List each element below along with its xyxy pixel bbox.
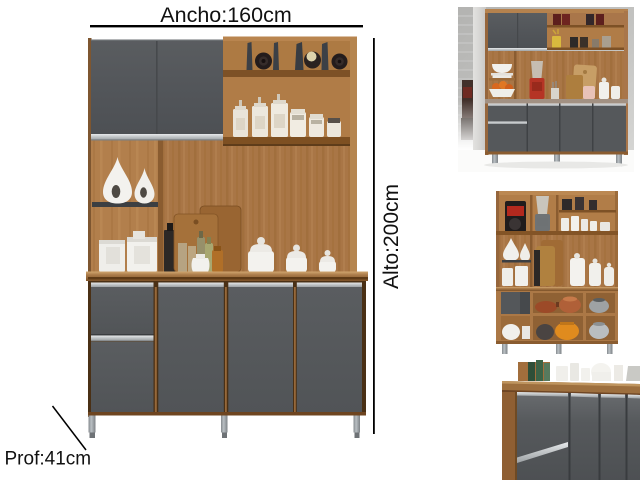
svg-text:Alto:200cm: Alto:200cm bbox=[380, 184, 403, 289]
svg-text:Ancho:160cm: Ancho:160cm bbox=[160, 3, 291, 27]
svg-text:Prof:41cm: Prof:41cm bbox=[5, 449, 92, 470]
